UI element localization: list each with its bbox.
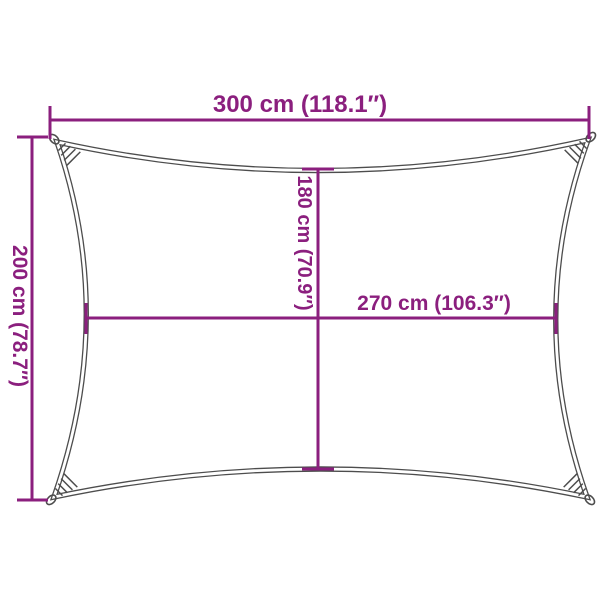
label-top-width: 300 cm (118.1″) — [213, 91, 387, 118]
label-center-height: 180 cm (70.9″) — [293, 175, 315, 310]
label-left-height: 200 cm (78.7″) — [8, 245, 31, 387]
dimension-diagram-canvas: 300 cm (118.1″) 200 cm (78.7″) 180 cm (7… — [0, 0, 600, 600]
label-center-width: 270 cm (106.3″) — [357, 292, 511, 315]
dimension-diagram: 300 cm (118.1″) 200 cm (78.7″) 180 cm (7… — [0, 0, 600, 600]
